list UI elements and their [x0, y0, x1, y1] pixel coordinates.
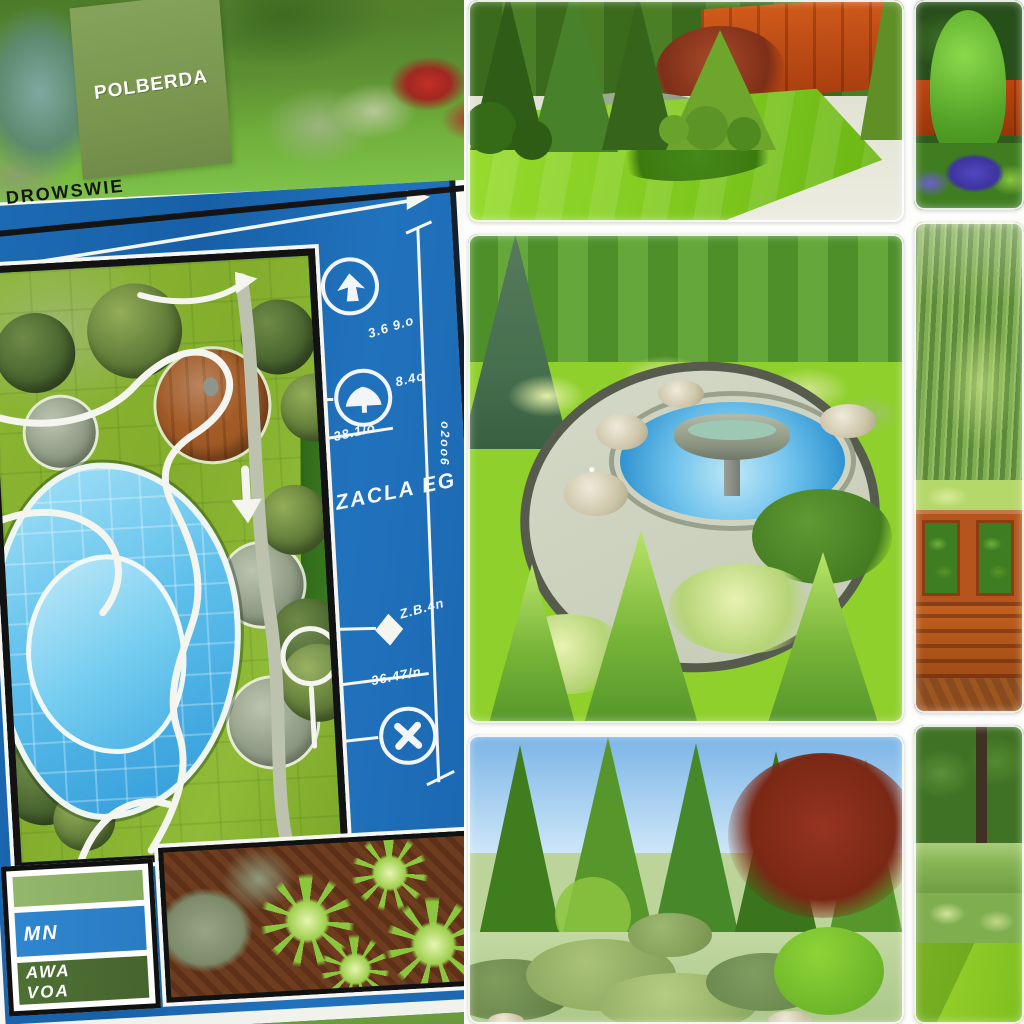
plan-drawing — [0, 248, 349, 870]
umbrella-tree-icon — [337, 371, 390, 424]
topiary-cones — [468, 0, 904, 160]
photo-pergola-bench — [914, 222, 1024, 713]
diamond-marker — [374, 613, 404, 647]
boulder — [564, 472, 628, 516]
tree-symbol-callout — [319, 256, 380, 317]
umbrella-tree-callout — [333, 367, 394, 428]
legend-row-blue: MN — [14, 906, 146, 957]
red-japanese-maple — [728, 753, 904, 918]
photo-pond-fountain-garden — [468, 234, 904, 723]
tree-trunk — [976, 725, 987, 843]
grass-top-of-trellis — [914, 480, 1024, 514]
green-conifer — [930, 10, 1006, 162]
stone — [768, 1011, 812, 1024]
garden-design-collage: POLBERDA DROWSWIE GROSENIE — [0, 0, 1024, 1024]
willow-foliage — [914, 222, 1024, 494]
wooden-bench — [914, 606, 1024, 678]
wooden-trellis — [914, 510, 1024, 606]
shrub-mound — [628, 913, 712, 957]
legend-label-mn: MN — [23, 921, 59, 946]
background-trees — [914, 725, 1024, 847]
legend-row-dark-green: AWA VOA — [17, 956, 149, 1005]
left-collage-column: POLBERDA DROWSWIE GROSENIE — [0, 0, 464, 1024]
green-title-card-label: POLBERDA — [93, 66, 209, 105]
climbing-plant-panel — [922, 520, 960, 596]
boulder — [658, 380, 704, 408]
photo-formal-topiary-garden — [468, 0, 904, 222]
clipped-hedge — [914, 843, 1024, 895]
green-title-card: POLBERDA — [70, 0, 233, 180]
deck-floor — [914, 678, 1024, 713]
fountain-water — [688, 420, 776, 440]
bright-green-ball-shrub — [774, 927, 884, 1015]
path-linework — [0, 256, 341, 863]
mulch-bed-detail-panel — [158, 830, 464, 1003]
x-mark-callout — [378, 705, 439, 766]
boulder — [596, 414, 648, 450]
legend-row-light-green — [12, 870, 143, 907]
tree-arrow-icon — [324, 260, 377, 313]
stone — [488, 1013, 524, 1024]
garden-blueprint: GROSENIE — [0, 180, 464, 1024]
photo-hedge-lawn-garden — [914, 725, 1024, 1024]
photo-conifer-blue-flowers — [914, 0, 1024, 210]
photo-mixed-border-garden: POLBERDA — [0, 0, 464, 203]
x-icon — [382, 709, 435, 762]
boulder — [820, 404, 876, 438]
edge-note: o2oo6 — [438, 421, 453, 467]
legend-label-awa: AWA — [25, 961, 71, 983]
purple-flower-bed — [914, 143, 1024, 210]
climbing-plant-panel — [976, 520, 1014, 596]
photo-conifer-maple-rockery — [468, 735, 904, 1024]
plan-legend: MN AWA VOA — [1, 858, 161, 1016]
ornamental-grasses — [914, 893, 1024, 945]
legend-label-voa: VOA — [26, 981, 70, 1003]
